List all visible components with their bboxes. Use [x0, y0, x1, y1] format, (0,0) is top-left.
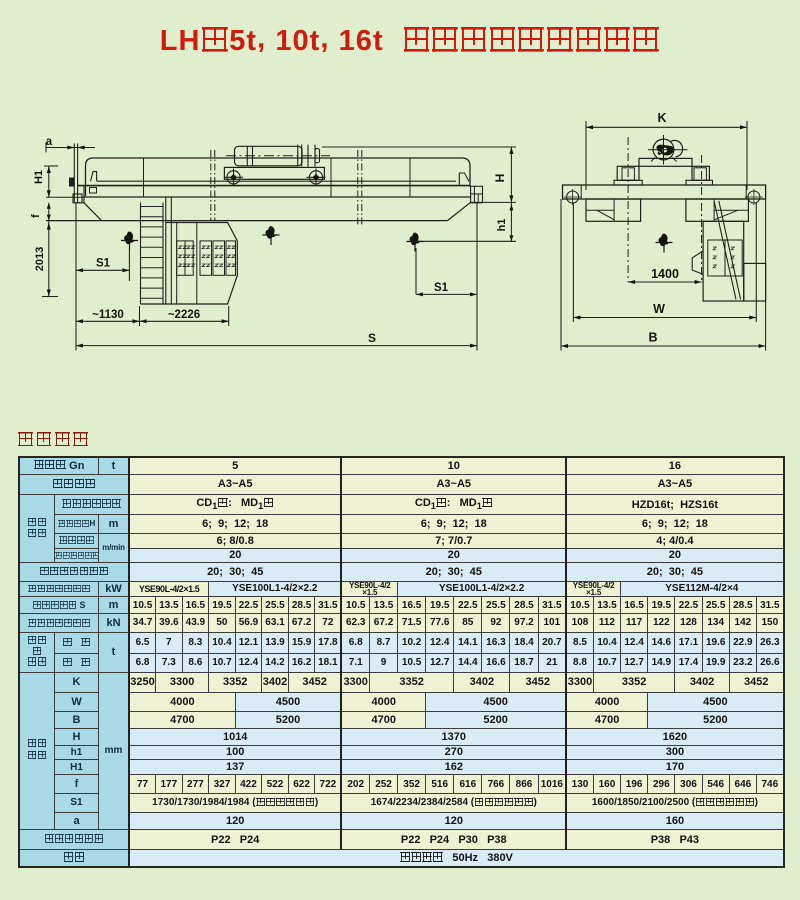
svg-text:~2226: ~2226	[168, 309, 200, 321]
svg-text:K: K	[657, 111, 666, 125]
svg-text:a: a	[46, 136, 53, 148]
svg-text:H1: H1	[33, 170, 45, 184]
svg-text:~1130: ~1130	[92, 309, 124, 321]
svg-text:H: H	[493, 174, 507, 183]
svg-text:S1: S1	[434, 282, 449, 294]
svg-text:1400: 1400	[651, 267, 679, 281]
svg-text:2013: 2013	[34, 247, 46, 271]
svg-text:S: S	[368, 331, 376, 345]
svg-text:f: f	[30, 214, 42, 218]
svg-text:B: B	[648, 331, 657, 345]
svg-text:W: W	[653, 302, 665, 316]
svg-text:h1: h1	[496, 219, 508, 232]
svg-text:S1: S1	[96, 258, 111, 270]
